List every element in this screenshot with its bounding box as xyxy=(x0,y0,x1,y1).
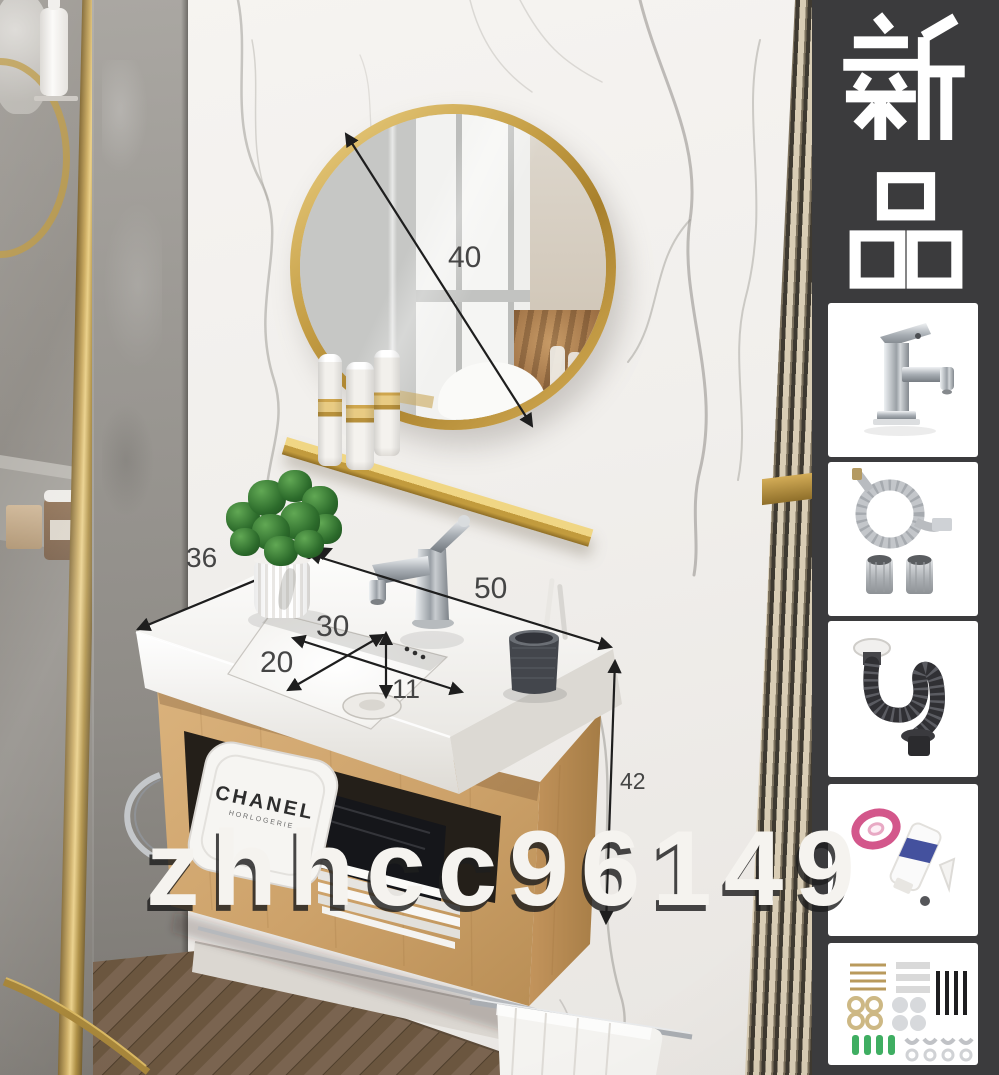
faucet-thumbnail-image xyxy=(828,303,978,457)
badge-char-xin xyxy=(838,12,970,144)
seller-watermark: zhhcc96149 xyxy=(146,818,867,920)
couplings xyxy=(866,555,933,594)
green-plant xyxy=(222,466,346,578)
arrow-mirror-diameter xyxy=(346,134,532,426)
dim-label-basin-depth: 20 xyxy=(260,648,293,678)
dim-label-cabinet-height: 42 xyxy=(620,770,646,793)
new-product-badge xyxy=(812,0,999,300)
accessory-thumb-drain[interactable] xyxy=(828,621,978,777)
hoses-thumbnail-image xyxy=(828,462,978,616)
drain-thumbnail-image xyxy=(828,621,978,777)
accessory-thumb-faucet[interactable] xyxy=(828,303,978,457)
badge-char-pin xyxy=(844,166,968,296)
arrow-basin-width xyxy=(293,638,462,692)
accessory-thumb-hardware[interactable] xyxy=(828,943,978,1065)
accessory-thumb-hoses[interactable] xyxy=(828,462,978,616)
hardware-thumbnail-image xyxy=(828,943,978,1065)
product-listing-image: CHANEL HORLOGERIE 40 36 50 30 xyxy=(0,0,999,1075)
dim-label-counter-depth: 36 xyxy=(186,544,217,572)
dim-label-mirror-diameter: 40 xyxy=(448,243,481,273)
dim-label-counter-width: 50 xyxy=(474,574,507,604)
dim-label-basin-height: 11 xyxy=(392,676,420,703)
arrow-counter-width xyxy=(309,554,611,647)
dim-label-basin-width: 30 xyxy=(316,612,349,642)
